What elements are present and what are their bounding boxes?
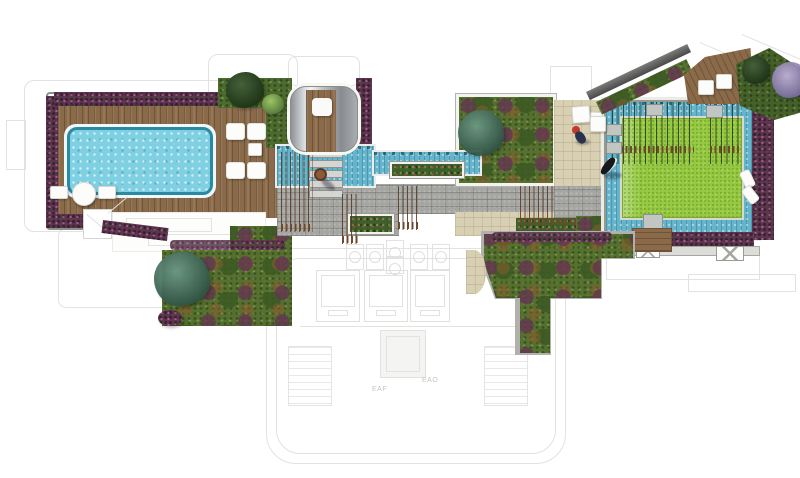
lift-shaft-symbol xyxy=(364,270,408,322)
underlay-outline-bottom-right2 xyxy=(688,274,796,292)
purple-shrub xyxy=(158,310,182,326)
underlay-outline-top-center xyxy=(288,56,360,86)
bench-seat xyxy=(50,186,68,199)
fan-unit-symbol xyxy=(410,244,428,270)
planting-strip-center-east xyxy=(356,78,372,148)
vine-row-west xyxy=(281,152,313,232)
tree-pool-terrace xyxy=(226,72,264,108)
planting-strip-west xyxy=(46,96,58,220)
timber-steps-south xyxy=(632,228,672,252)
flower-row-bed-top xyxy=(170,240,285,250)
lift-shaft-symbol xyxy=(410,270,450,322)
tree-ne xyxy=(742,56,770,84)
vine-tufts xyxy=(398,222,420,229)
deck-seat-pad xyxy=(698,80,714,95)
hedge-planter-in-channel xyxy=(390,162,464,178)
fan-unit-symbol xyxy=(346,244,364,270)
stepping-pad xyxy=(706,105,723,118)
underlay-label-eao: EAO xyxy=(422,377,438,384)
bench-seat xyxy=(98,186,116,199)
underlay-outline-right-small xyxy=(550,66,592,102)
sun-lounger xyxy=(226,162,245,179)
flagstone-east xyxy=(554,186,610,218)
tree-central-bed xyxy=(458,110,504,156)
stepping-pad xyxy=(606,142,622,154)
round-table xyxy=(72,182,96,206)
terrace-table xyxy=(571,105,590,123)
shrub-pool-terrace xyxy=(262,94,284,114)
spa-cover xyxy=(312,98,332,116)
tree-south-bed xyxy=(154,252,210,306)
bamboo-bases xyxy=(612,146,694,153)
lavender-tree-ne xyxy=(772,62,800,98)
sun-lounger xyxy=(247,123,266,140)
underlay-label-eaf: EAF xyxy=(372,386,387,393)
landscape-plan-canvas: EAF EAO xyxy=(0,0,800,478)
underlay-central-room-inner xyxy=(386,336,420,372)
person-on-steps xyxy=(316,170,325,179)
bamboo-bases xyxy=(710,146,740,153)
vine-tufts xyxy=(342,236,360,243)
fan-unit-symbol xyxy=(432,244,450,270)
stair-symbol xyxy=(288,346,332,406)
vine-tufts xyxy=(281,224,313,231)
stepping-pad xyxy=(606,124,622,136)
underlay-wall-line xyxy=(300,326,540,327)
underlay-outline-left-notch xyxy=(6,120,26,170)
sun-lounger xyxy=(226,123,245,140)
terrace-edge-table xyxy=(590,116,606,132)
stair-symbol xyxy=(484,346,528,406)
planting-strip-north xyxy=(54,92,224,106)
stepping-pad xyxy=(646,104,663,116)
deck-seat-pad xyxy=(716,74,732,89)
sun-lounger xyxy=(247,162,266,179)
flower-row-stepped-bed xyxy=(492,232,612,242)
fan-unit-symbol xyxy=(366,244,384,270)
roof-hatch xyxy=(716,246,744,261)
side-table xyxy=(248,143,262,156)
lift-shaft-symbol xyxy=(316,270,360,322)
